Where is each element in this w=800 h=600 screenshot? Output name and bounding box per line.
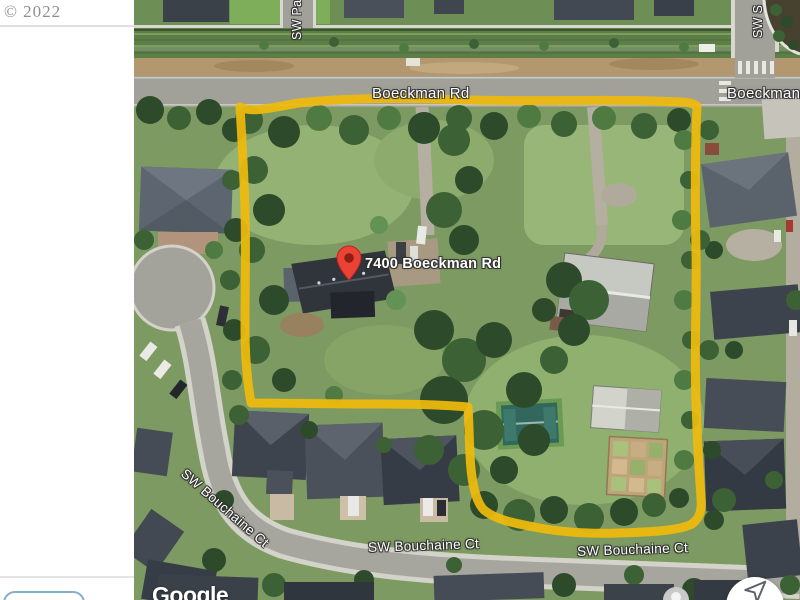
google-logo: Google [152,582,228,600]
road-label-sw-pa: SW Pa [290,0,304,40]
pin-address-label: 7400 Boeckman Rd [365,256,501,272]
location-pin-icon[interactable] [336,245,362,281]
partial-pill-button[interactable] [3,591,85,600]
road-label-boeckman: Boeckman Rd [372,85,470,102]
page-margin-panel: © 2022 [0,0,134,600]
divider [0,576,134,578]
road-label-boeckman-right: Boeckman Rd [727,85,800,102]
screenshot-stage: .t1{fill:#2d4b2a}.t2{fill:#3c6134}.t3{fi… [0,0,800,600]
divider [0,25,134,27]
copyright-text: © 2022 [4,2,61,22]
neighbor-house-west [139,166,233,233]
greenhouse [591,386,662,433]
neighbor-house-ne [701,152,797,228]
cul-de-sac [134,246,214,330]
satellite-map-canvas[interactable]: .t1{fill:#2d4b2a}.t2{fill:#3c6134}.t3{fi… [134,0,800,600]
garden-plots [607,437,668,498]
road-label-sw-s: SW S [751,5,765,38]
navigation-arrow-icon [742,579,768,600]
